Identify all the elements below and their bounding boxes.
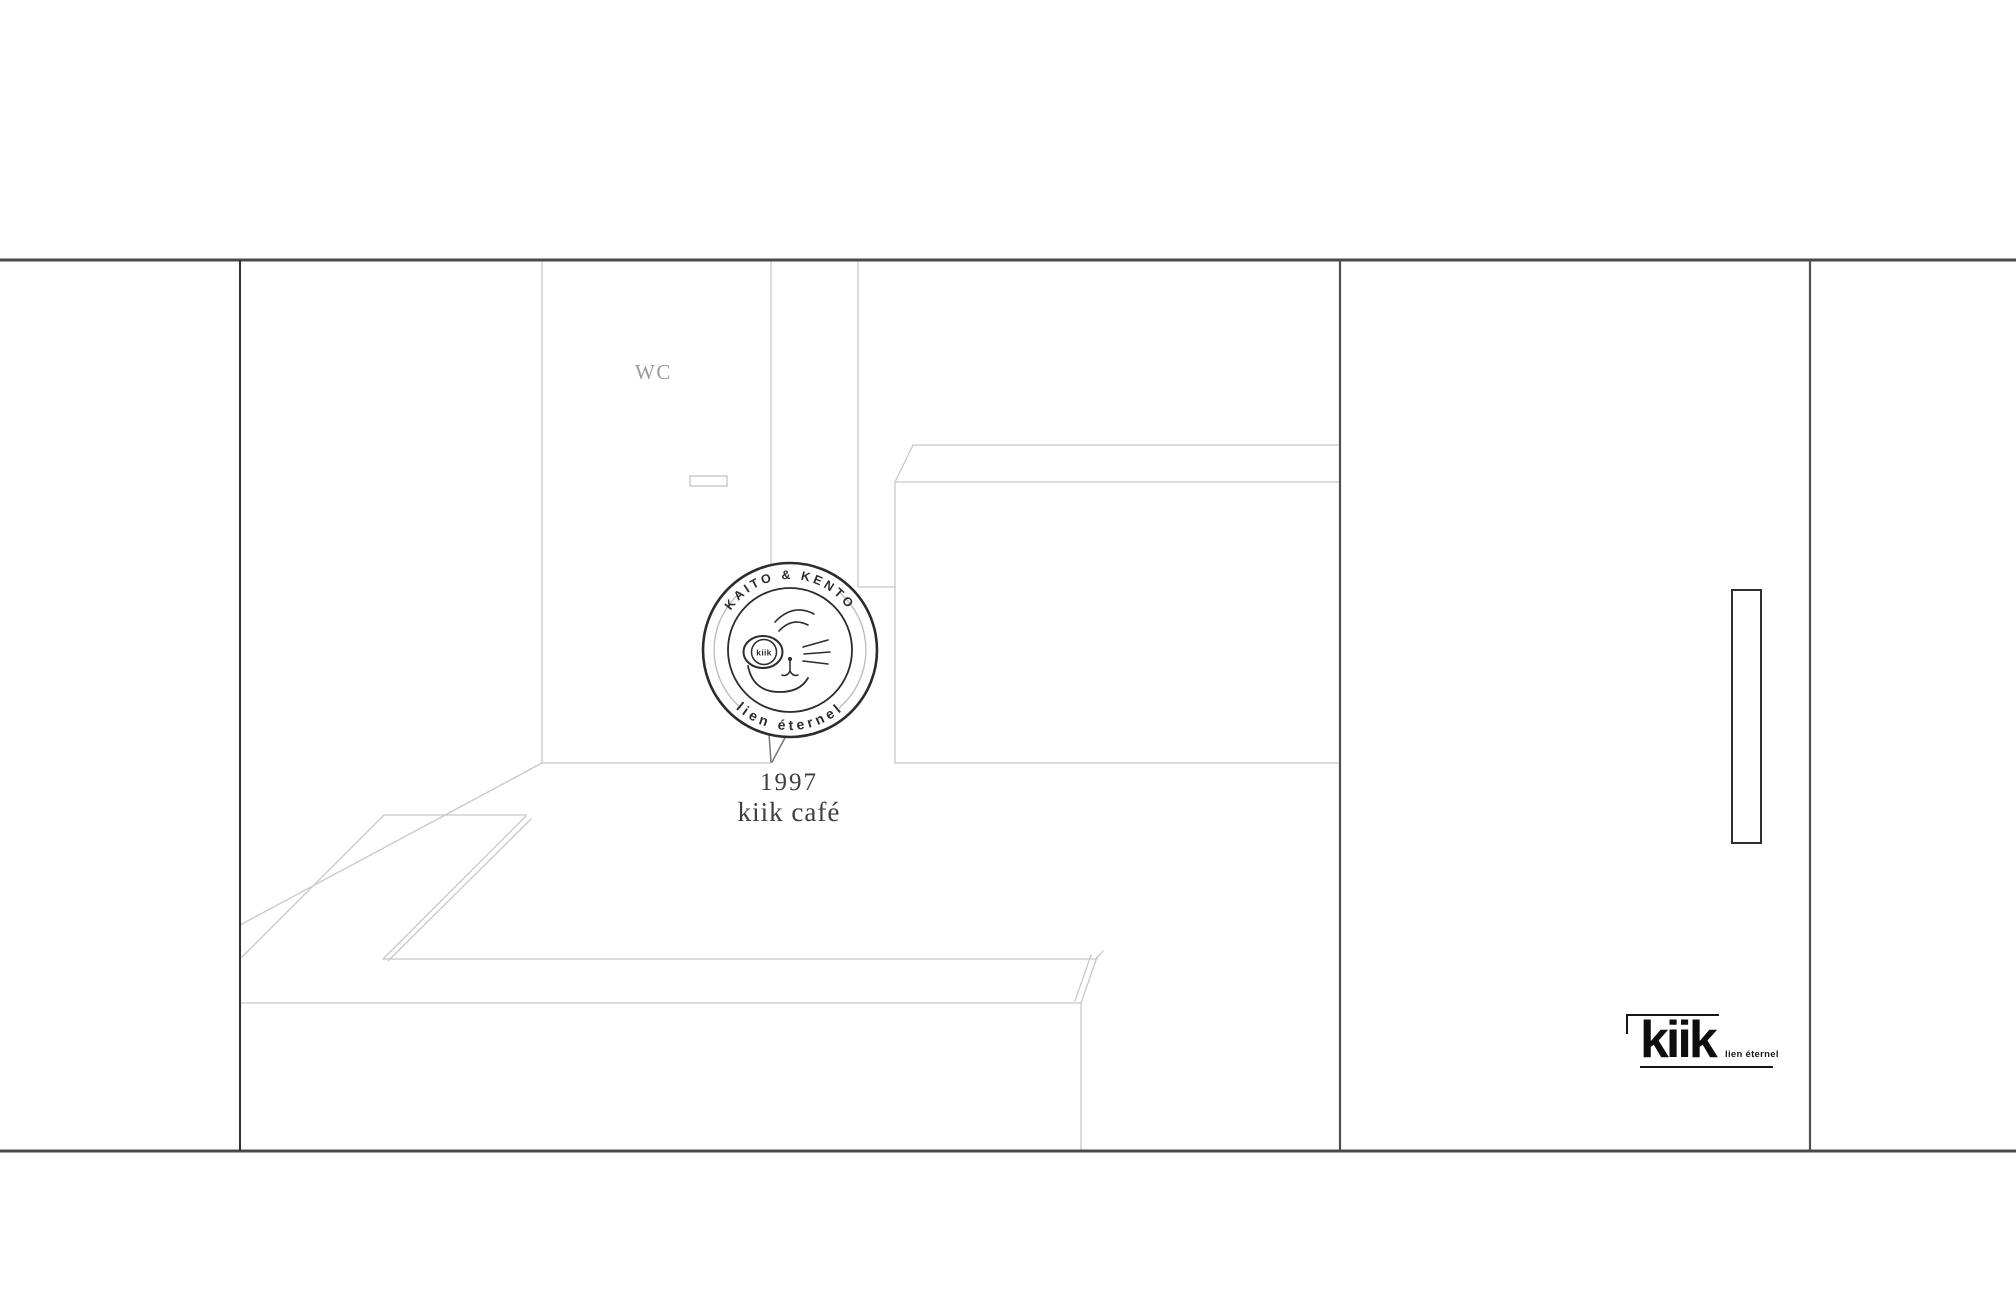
caption-year: 1997 [639, 770, 939, 796]
cafe-elevation-rendering: KAITO & KENTO lien éternel [0, 0, 2016, 1299]
brand-wordmark: kiik [1640, 1013, 1715, 1067]
badge-tail [769, 734, 786, 762]
brand-underline [1640, 1066, 1773, 1068]
badge-caption: 1997 kiik café [639, 770, 939, 827]
wc-door-handle [690, 476, 727, 486]
badge-center-mark: kiik [756, 648, 771, 658]
brand-tagline: lien éternel [1725, 1049, 1779, 1060]
bar-counter-lines [240, 815, 1103, 1150]
service-cabinet-lines [895, 445, 1340, 763]
badge-logo: KAITO & KENTO lien éternel [703, 563, 877, 762]
wc-room-label: WC [635, 360, 672, 385]
door-handle [1732, 590, 1761, 843]
badge-inner-circle [728, 588, 852, 712]
caption-cafe-name: kiik café [639, 798, 939, 827]
brand-logo: kiik lien éternel [1620, 1005, 1820, 1075]
line-drawing: KAITO & KENTO lien éternel [0, 0, 2016, 1299]
